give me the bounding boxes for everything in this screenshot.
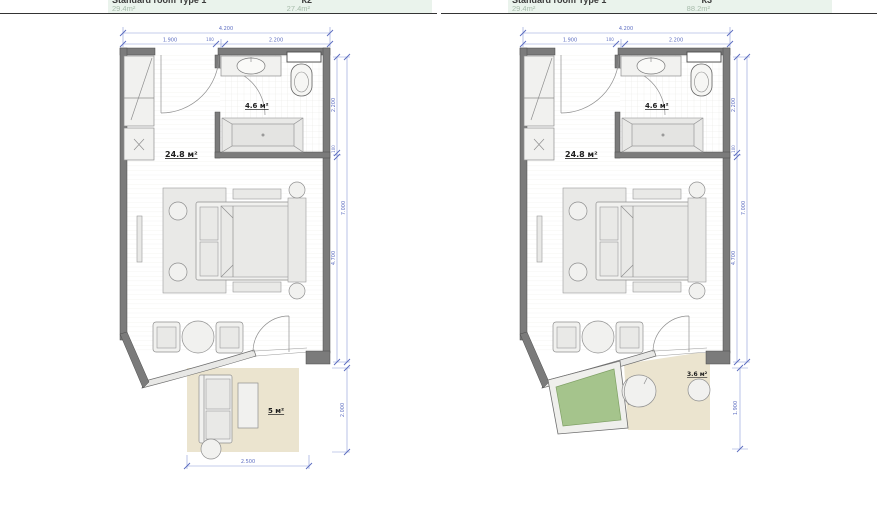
floor-plans-svg: 24.8 м² 4.6 м² 5 м² 4.200 1.900 100 2.20… (0, 0, 880, 510)
dim-side-gap: 100 (331, 145, 336, 153)
room-area-label: 24.8 м² (165, 150, 198, 159)
right-floorplan: 24.8 м² 4.6 м² 3.6 м² 4.200 1.900 100 2.… (520, 26, 750, 452)
dim-top-gap: 100 (606, 37, 614, 42)
terrace-coffee-table (238, 383, 258, 428)
dim-top-total: 4.200 (619, 26, 633, 32)
dim-terrace-width: 2.500 (241, 459, 255, 465)
dim-side-top: 2.200 (731, 98, 737, 112)
bath-area-label: 4.6 м² (245, 102, 269, 110)
bath-area-label: 4.6 м² (645, 102, 669, 110)
dim-top-left: 1.900 (563, 38, 577, 44)
dim-side-total: 7.000 (341, 201, 347, 215)
dim-side-main: 4.700 (731, 251, 737, 265)
dim-terrace-depth: 2.000 (340, 403, 346, 417)
terrace-side-table (201, 439, 221, 459)
dim-top-right: 2.200 (269, 38, 283, 44)
dim-top-left: 1.900 (163, 38, 177, 44)
room-area-label: 24.8 м² (565, 150, 598, 159)
dim-side-top: 2.200 (331, 98, 337, 112)
dim-terrace-depth: 1.900 (733, 401, 739, 415)
dim-top-gap: 100 (206, 37, 214, 42)
terrace-round-table (688, 379, 710, 401)
dim-top-right: 2.200 (669, 38, 683, 44)
dim-side-main: 4.700 (331, 251, 337, 265)
dim-side-gap: 100 (731, 145, 736, 153)
terrace-area-label: 5 м² (268, 407, 284, 415)
dim-top-total: 4.200 (219, 26, 233, 32)
dim-side-total: 7.000 (741, 201, 747, 215)
terrace-area-label: 3.6 м² (687, 371, 708, 378)
left-floorplan: 24.8 м² 4.6 м² 5 м² 4.200 1.900 100 2.20… (120, 26, 350, 469)
floorplan-sheet: Standard room Type 1 К2 29.4m² 27.4m² St… (0, 0, 880, 510)
